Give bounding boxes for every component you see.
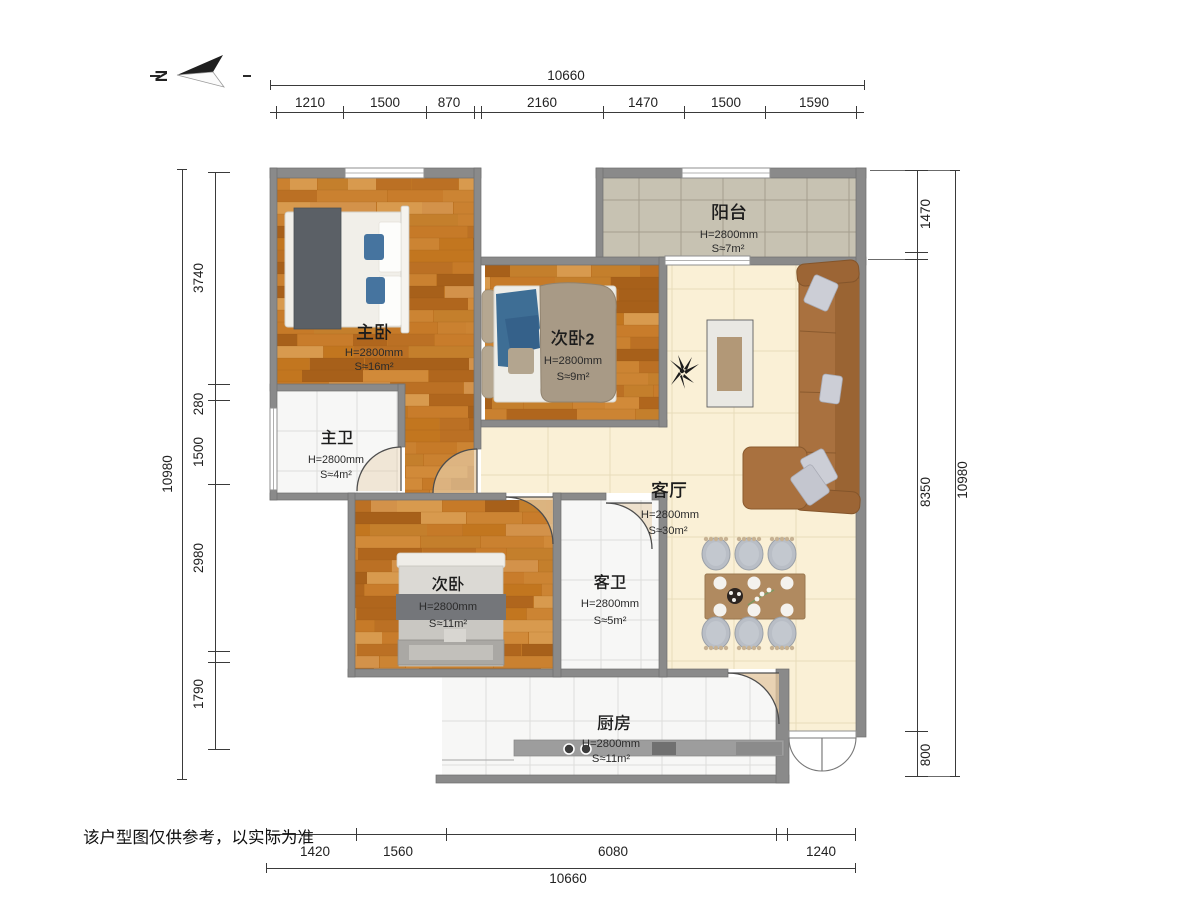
svg-text:S≈11m²: S≈11m² (592, 753, 631, 765)
svg-text:1790: 1790 (191, 679, 206, 709)
svg-text:2980: 2980 (191, 543, 206, 573)
svg-text:S≈7m²: S≈7m² (712, 243, 745, 255)
svg-text:800: 800 (918, 744, 933, 767)
svg-text:870: 870 (438, 95, 461, 110)
svg-text:280: 280 (191, 393, 206, 416)
svg-text:8350: 8350 (918, 477, 933, 507)
svg-text:10660: 10660 (547, 68, 585, 83)
svg-text:S≈4m²: S≈4m² (320, 469, 352, 481)
svg-text:1470: 1470 (918, 199, 933, 229)
svg-text:H=2800mm: H=2800mm (700, 229, 758, 241)
svg-text:6080: 6080 (598, 844, 628, 859)
svg-text:S≈16m²: S≈16m² (354, 361, 393, 373)
svg-text:1590: 1590 (799, 95, 829, 110)
svg-text:S≈5m²: S≈5m² (594, 615, 627, 627)
svg-text:1420: 1420 (300, 844, 330, 859)
svg-text:S≈9m²: S≈9m² (557, 371, 590, 383)
svg-text:H=2800mm: H=2800mm (419, 601, 477, 613)
svg-text:2160: 2160 (527, 95, 557, 110)
svg-text:3740: 3740 (191, 263, 206, 293)
svg-text:S≈30m²: S≈30m² (648, 525, 687, 537)
svg-text:H=2800mm: H=2800mm (308, 454, 364, 466)
svg-text:H=2800mm: H=2800mm (582, 738, 640, 750)
svg-text:1470: 1470 (628, 95, 658, 110)
svg-text:H=2800mm: H=2800mm (544, 355, 602, 367)
svg-text:1210: 1210 (295, 95, 325, 110)
svg-text:1500: 1500 (191, 437, 206, 467)
svg-text:N: N (152, 70, 171, 82)
svg-text:1500: 1500 (711, 95, 741, 110)
svg-text:S≈11m²: S≈11m² (429, 618, 468, 630)
svg-text:1240: 1240 (806, 844, 836, 859)
svg-text:10980: 10980 (955, 461, 970, 499)
svg-text:1500: 1500 (370, 95, 400, 110)
svg-text:2: 2 (586, 331, 595, 348)
svg-text:10660: 10660 (549, 871, 587, 886)
svg-text:1560: 1560 (383, 844, 413, 859)
svg-text:10980: 10980 (160, 455, 175, 493)
svg-text:H=2800mm: H=2800mm (345, 347, 403, 359)
svg-text:H=2800mm: H=2800mm (641, 509, 699, 521)
svg-text:H=2800mm: H=2800mm (581, 598, 639, 610)
